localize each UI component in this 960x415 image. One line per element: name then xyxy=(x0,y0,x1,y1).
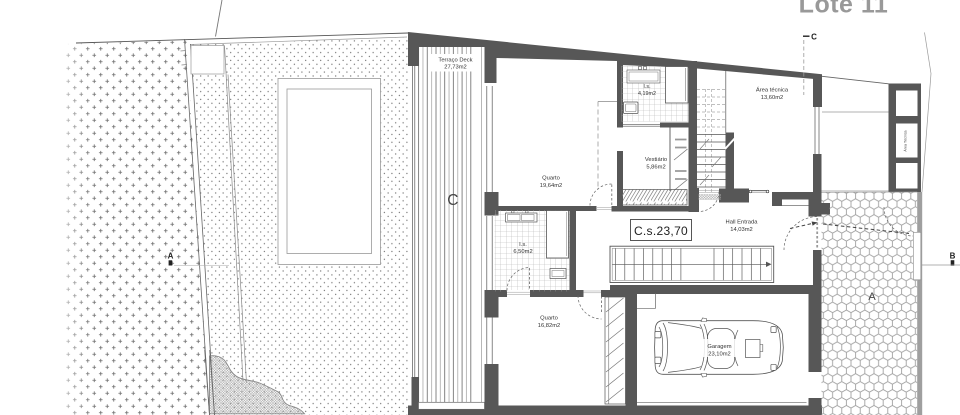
svg-text:6,50m2: 6,50m2 xyxy=(513,249,532,255)
svg-text:C: C xyxy=(811,33,817,42)
svg-text:Quarto: Quarto xyxy=(540,316,558,322)
svg-text:A: A xyxy=(868,291,876,303)
svg-text:C.s.23,70: C.s.23,70 xyxy=(634,224,688,238)
svg-text:13,60m2: 13,60m2 xyxy=(761,95,784,101)
svg-text:5,86m2: 5,86m2 xyxy=(646,165,665,171)
svg-text:B: B xyxy=(950,252,956,261)
svg-text:Área Técnica: Área Técnica xyxy=(904,130,908,151)
svg-text:27,73m2: 27,73m2 xyxy=(444,65,467,71)
svg-text:16,82m2: 16,82m2 xyxy=(538,323,561,329)
svg-text:Lote 11: Lote 11 xyxy=(799,0,889,19)
svg-text:Terraço Deck: Terraço Deck xyxy=(438,58,472,64)
svg-text:Garagem: Garagem xyxy=(707,344,731,350)
svg-text:I.s.: I.s. xyxy=(519,242,527,248)
svg-text:I.s.: I.s. xyxy=(643,84,650,90)
svg-text:19,64m2: 19,64m2 xyxy=(540,183,563,189)
svg-text:Área técnica: Área técnica xyxy=(756,87,789,94)
svg-text:Vestiário: Vestiário xyxy=(645,157,667,163)
svg-text:Quarto: Quarto xyxy=(542,176,560,182)
svg-text:C: C xyxy=(447,192,458,209)
svg-text:Hall Entrada: Hall Entrada xyxy=(726,220,759,226)
svg-text:4,19m2: 4,19m2 xyxy=(638,91,656,97)
svg-text:14,03m2: 14,03m2 xyxy=(730,227,753,233)
svg-text:23,10m2: 23,10m2 xyxy=(708,352,731,358)
svg-text:A: A xyxy=(168,252,174,261)
